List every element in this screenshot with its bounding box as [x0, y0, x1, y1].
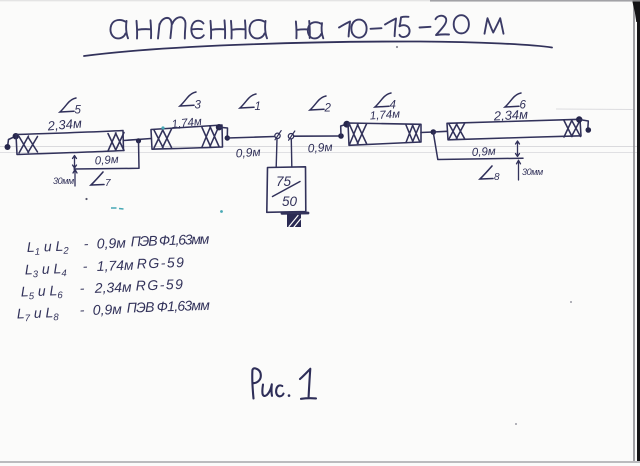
svg-text:2,34м: 2,34м: [492, 107, 528, 124]
svg-text:8: 8: [494, 172, 500, 183]
svg-text:0,9м: 0,9м: [94, 154, 119, 168]
svg-text:0,9м: 0,9м: [307, 140, 333, 156]
svg-text:1: 1: [255, 101, 261, 113]
svg-text:2,34м: 2,34м: [46, 116, 82, 134]
svg-text:2: 2: [324, 103, 332, 115]
svg-text:0,9м: 0,9м: [235, 145, 261, 161]
svg-text:0,9м: 0,9м: [472, 146, 497, 159]
svg-text:75: 75: [276, 174, 292, 189]
svg-text:1,74м: 1,74м: [369, 108, 400, 122]
svg-text:30мм: 30мм: [53, 176, 74, 186]
svg-text:50: 50: [282, 194, 298, 209]
svg-text:7: 7: [105, 178, 111, 189]
svg-text:30мм: 30мм: [522, 167, 543, 177]
svg-text:3: 3: [195, 100, 202, 112]
